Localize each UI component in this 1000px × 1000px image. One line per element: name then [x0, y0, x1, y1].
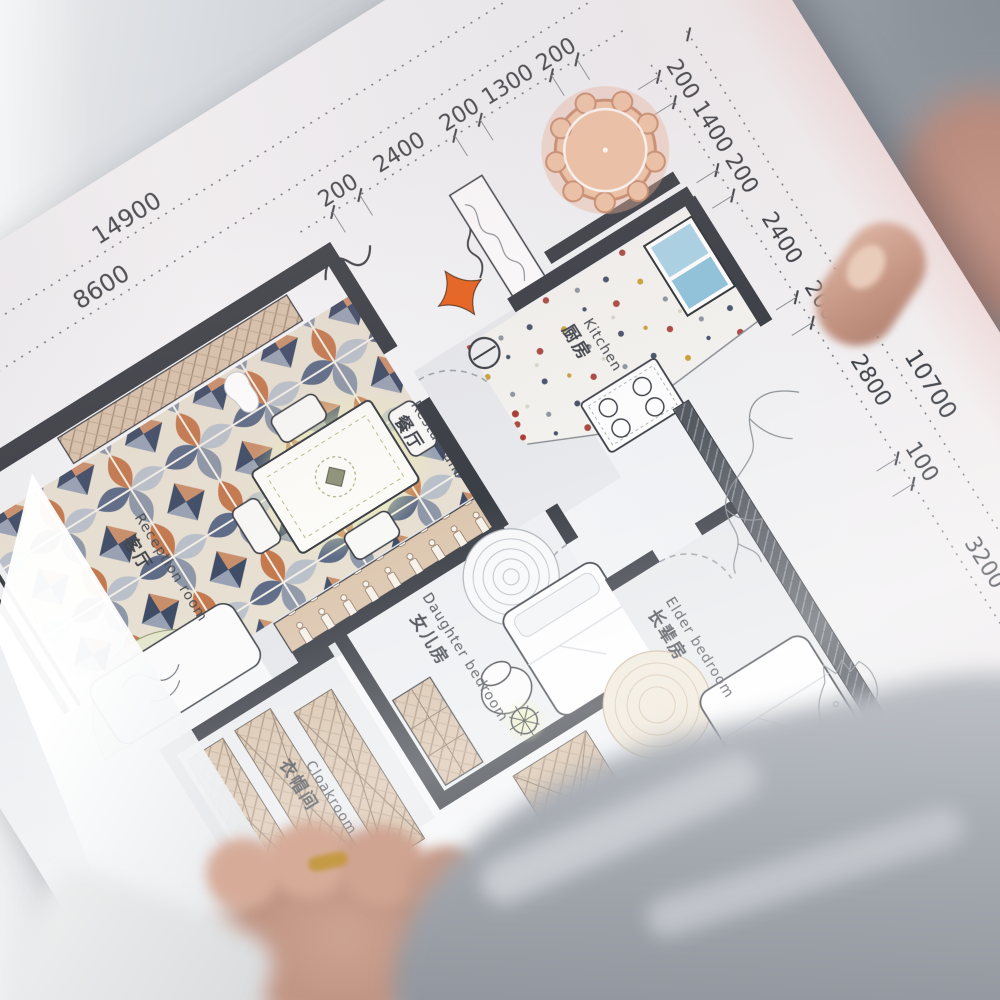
- dim-top-segment-4: 200: [532, 33, 581, 76]
- dim-right-segment-7: 3200: [959, 533, 1000, 594]
- dim-right-overall: 10700: [899, 344, 963, 424]
- dim-top-segment-2: 200: [435, 94, 484, 137]
- dim-right-segment-3: 2400: [756, 208, 807, 269]
- table-centerpiece: [326, 467, 345, 486]
- orange-kite-decoration: [425, 258, 495, 329]
- dim-right-segment-6: 100: [899, 438, 942, 487]
- dim-right-segment-1: 1400: [686, 97, 737, 158]
- dim-right-segment-5: 2800: [845, 350, 896, 411]
- dim-top-segment-0: 200: [314, 170, 363, 213]
- dim-top-segment-1: 2400: [369, 128, 430, 179]
- photo-scene: 14900 8600 200 2400 200 1300 200 200 140…: [0, 0, 1000, 1000]
- dim-top-overall: 14900: [87, 186, 167, 250]
- dim-top-inner: 8600: [68, 259, 135, 315]
- dim-right-segment-0: 200: [660, 55, 703, 104]
- dim-right-segment-2: 200: [719, 149, 762, 198]
